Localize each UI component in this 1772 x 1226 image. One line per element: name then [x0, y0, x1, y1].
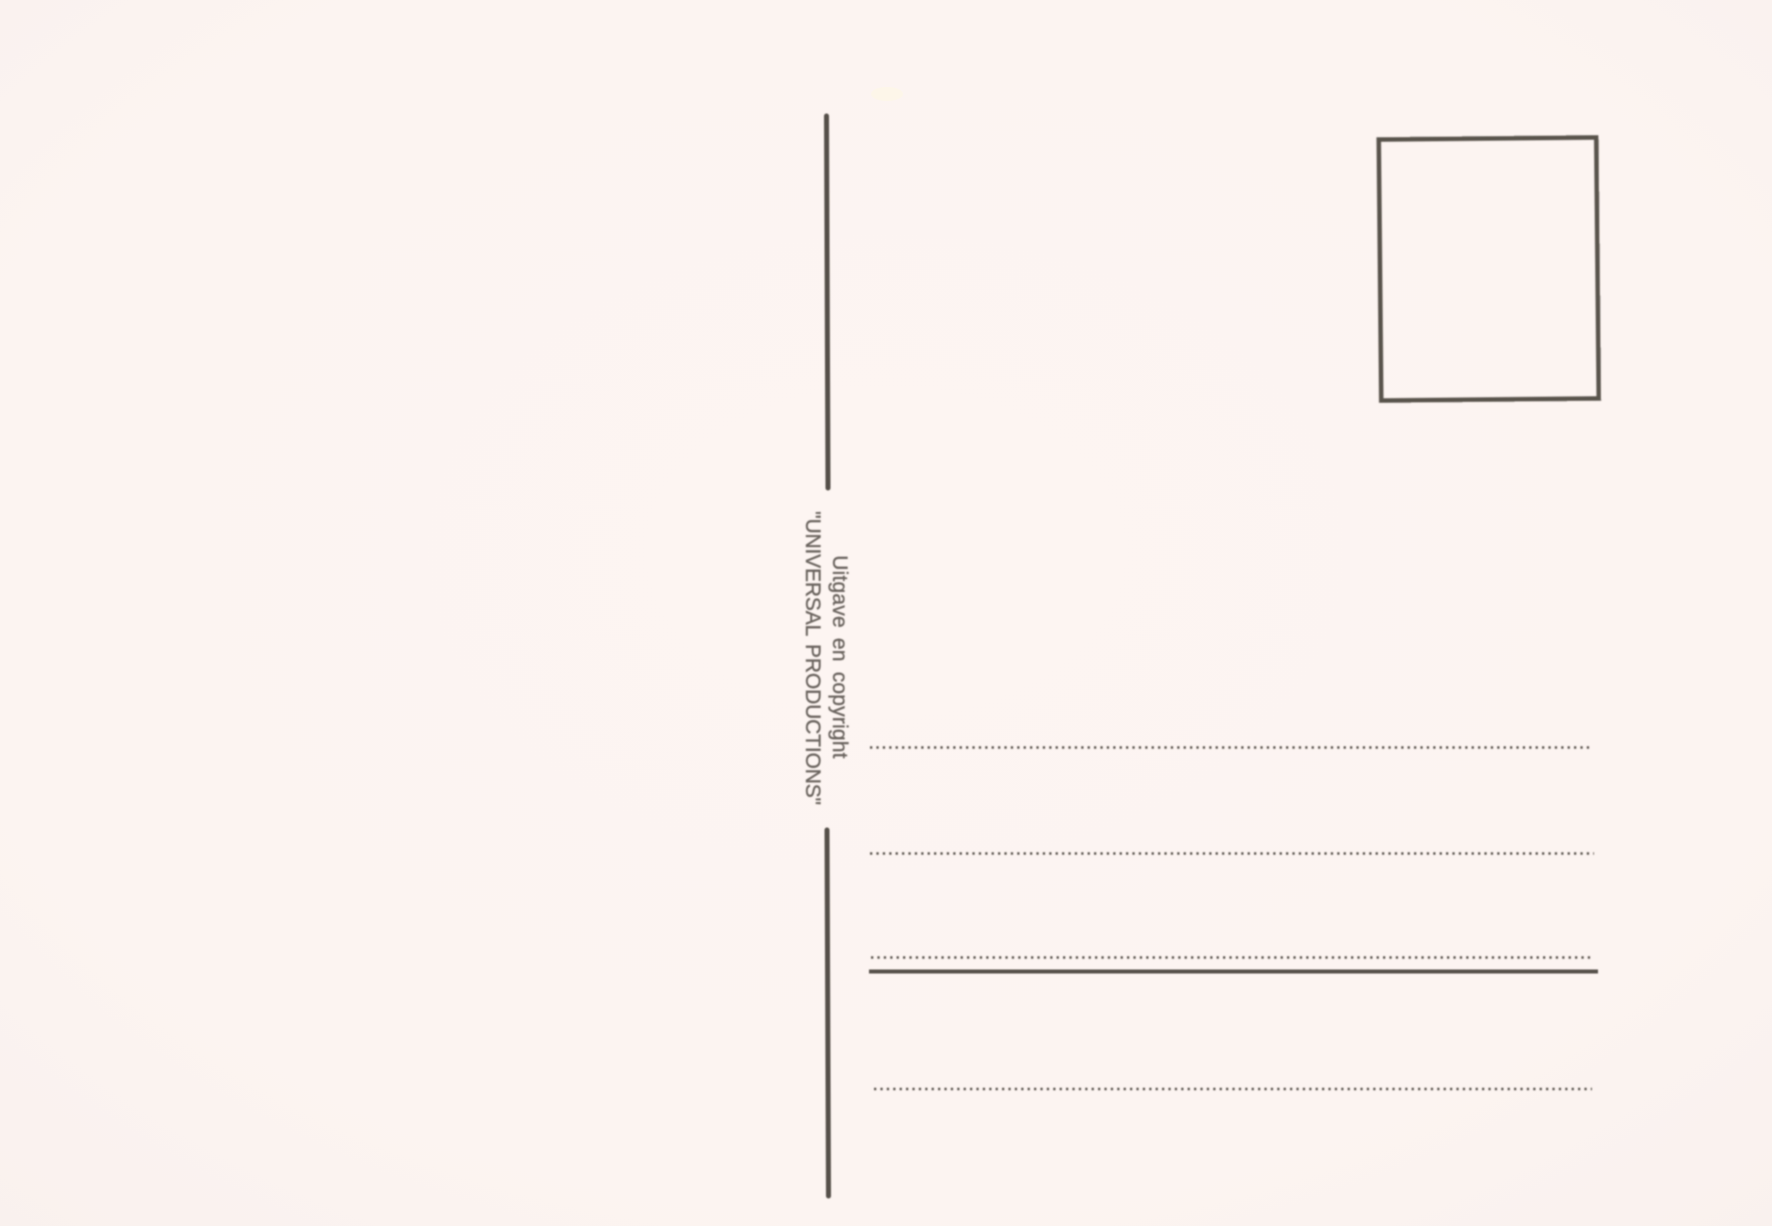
- svg-text:"UNIVERSAL PRODUCTIONS": "UNIVERSAL PRODUCTIONS": [801, 511, 824, 805]
- svg-text:Uitgave en copyright: Uitgave en copyright: [828, 555, 851, 758]
